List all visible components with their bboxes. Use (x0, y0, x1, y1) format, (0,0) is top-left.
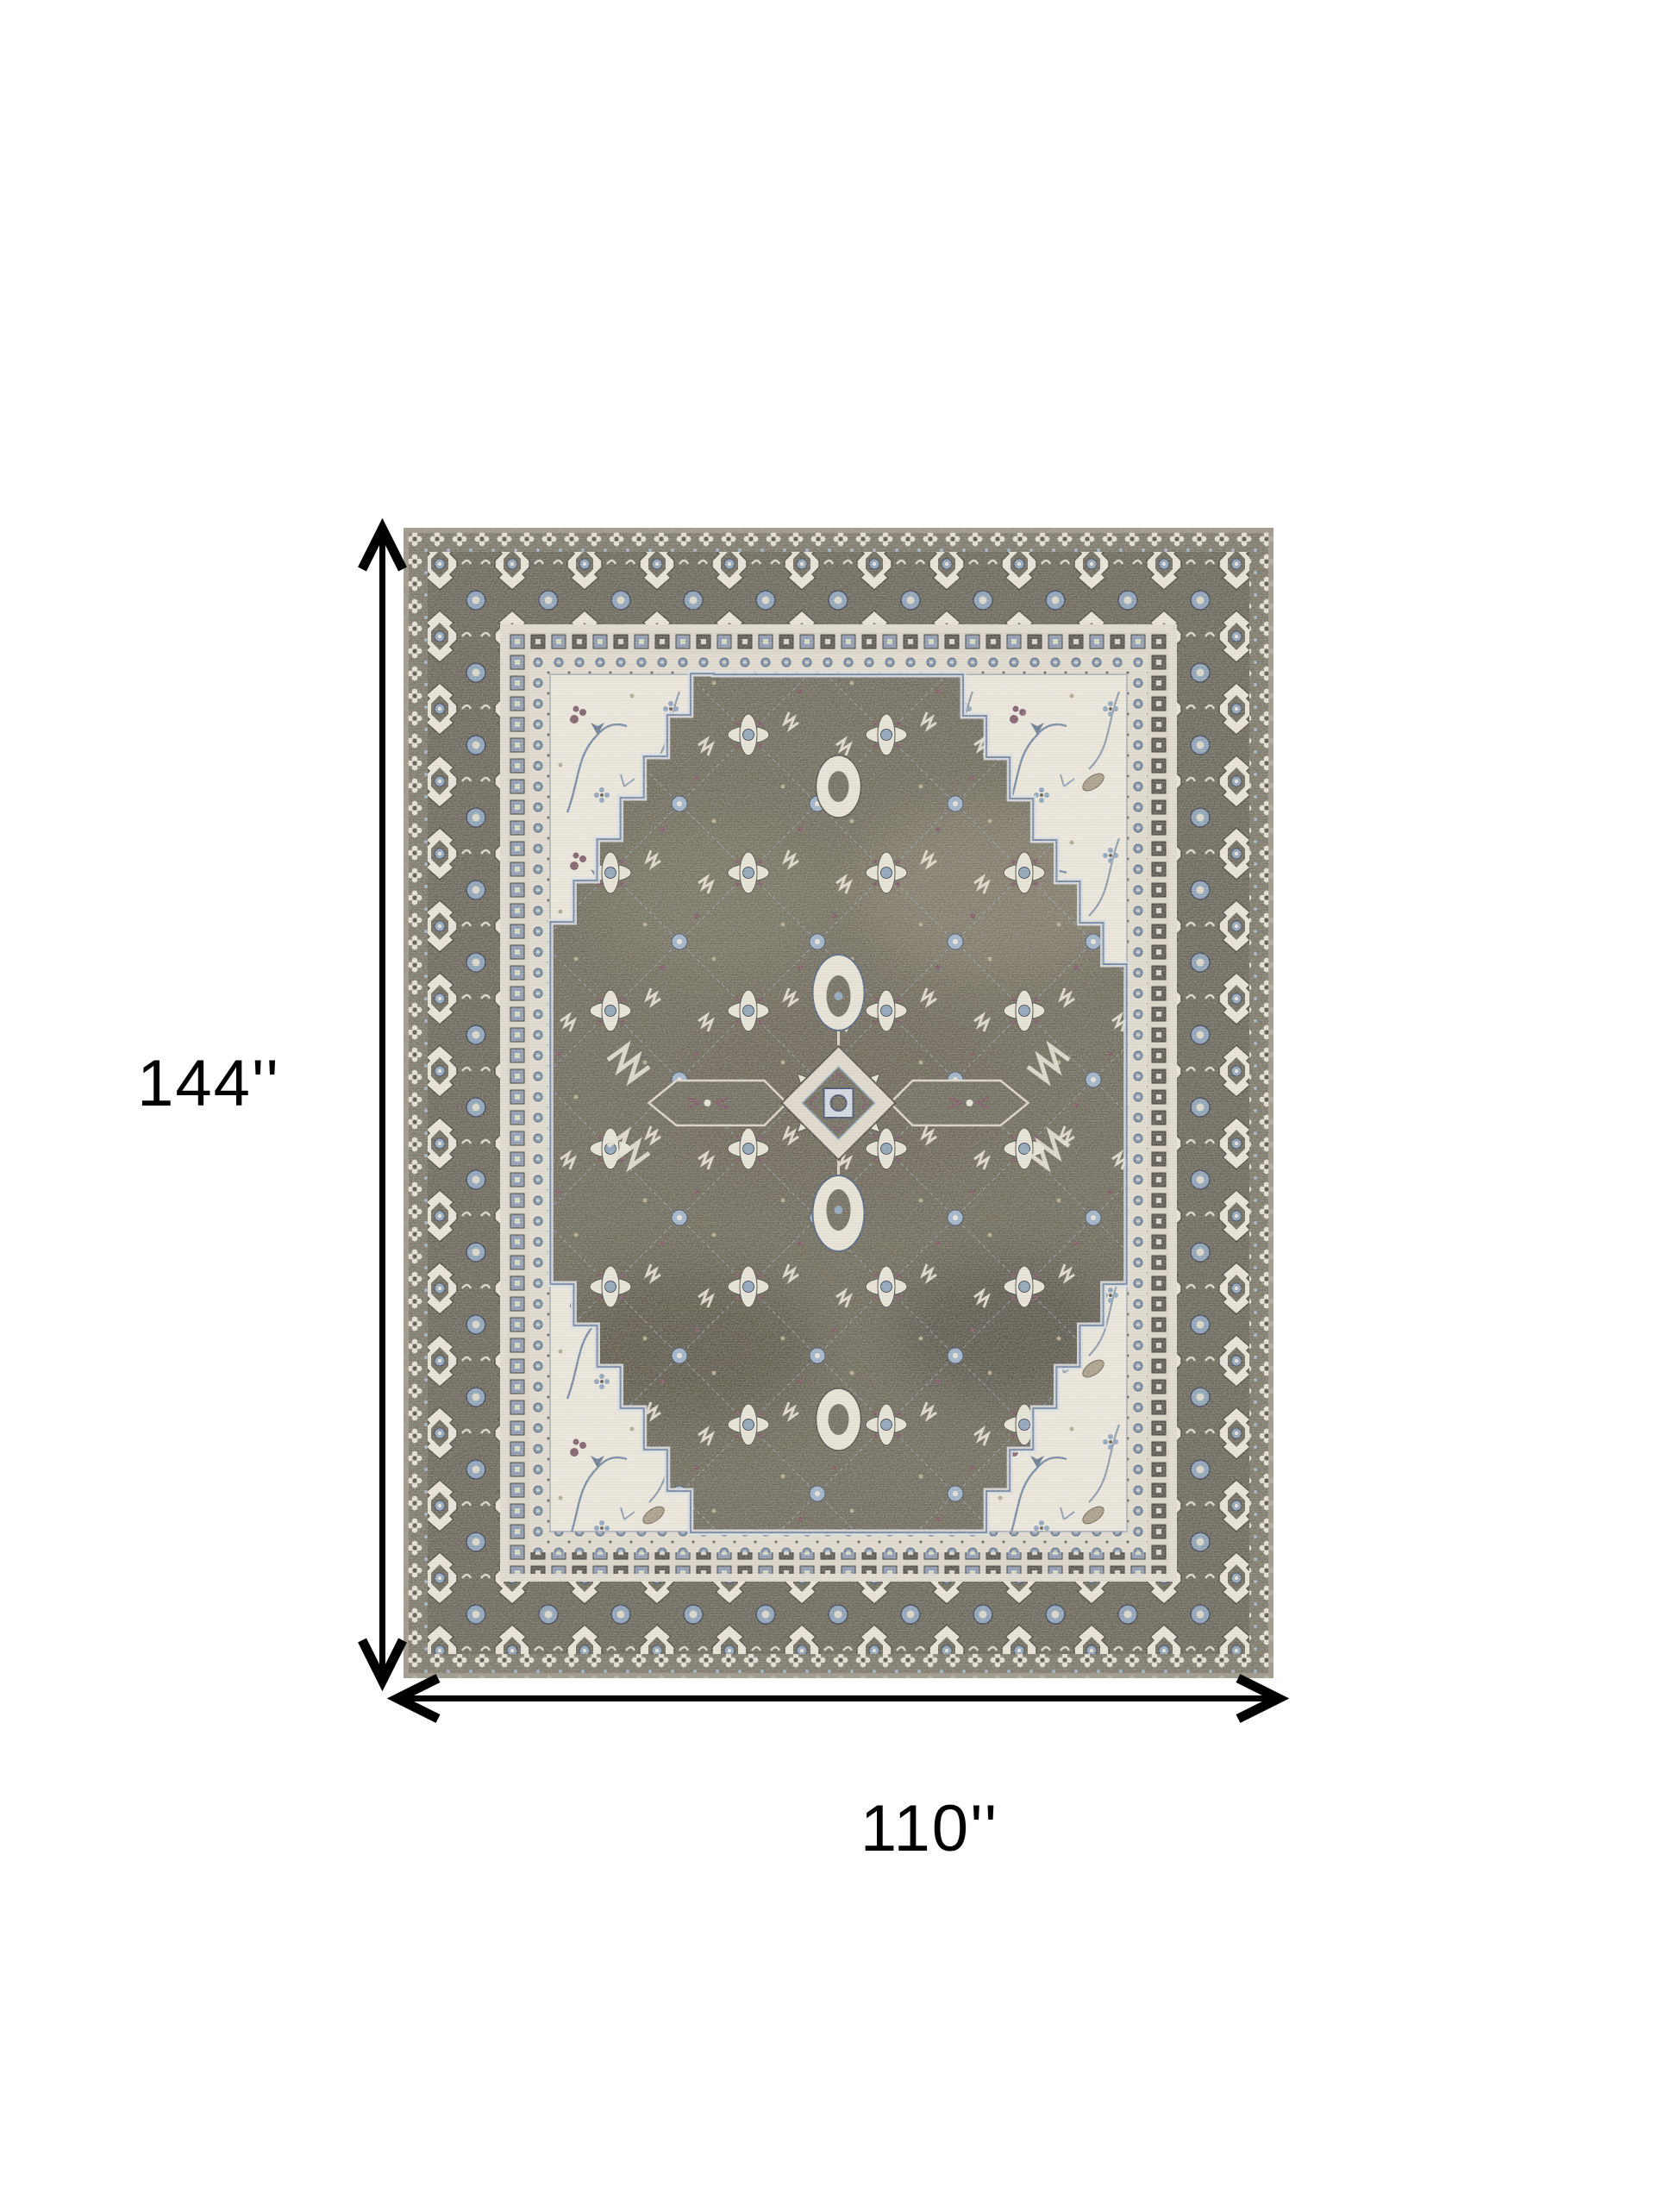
rug-image (404, 528, 1273, 1678)
width-dimension-arrow (397, 1678, 1279, 1719)
arrow-head-down-icon (362, 1640, 403, 1681)
arrow-head-right-icon (1238, 1678, 1279, 1719)
width-dimension-label: 110'' (800, 1796, 1059, 1862)
height-dimension-label: 144'' (79, 1051, 338, 1117)
rug-distress-wash (404, 528, 1273, 1678)
product-image-canvas: 144'' 110'' (0, 0, 1677, 2212)
arrow-head-up-icon (362, 529, 403, 569)
height-dimension-arrow (362, 529, 403, 1681)
arrow-head-left-icon (397, 1678, 438, 1719)
rug-image-container (404, 528, 1273, 1678)
